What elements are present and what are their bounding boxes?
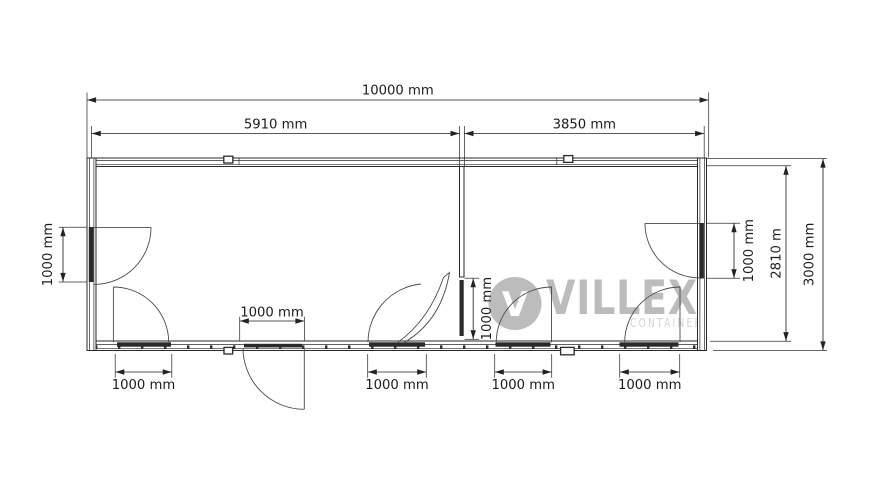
dim-label-door-front-room2-left: 1000 mm [491,378,554,393]
top-wall-outlet-box-1 [224,156,233,163]
front-door-mid-leaf [244,344,302,348]
front-door-room2-right-leaf [620,342,679,346]
floor-plan-page: V VILLEX CONTAINER [0,0,872,490]
left-wall-door-leaf [89,227,94,282]
right-wall-door-swing [645,223,700,278]
dim-label-door-partition: 1000 mm [480,277,495,340]
dim-label-overall-width: 10000 mm [362,84,434,99]
dim-label-door-front-left: 1000 mm [112,378,175,393]
front-door-room1-right-swing [368,284,421,342]
bottom-wall-outlet-box-1 [224,347,233,354]
front-door-room1-right-leaf [369,342,425,346]
front-door-mid-swing [243,348,304,409]
front-door-room1-right-open-leaf [398,273,450,343]
dim-label-depth-outer: 3000 mm [803,223,818,286]
dim-label-section-right: 3850 mm [553,118,616,133]
dim-label-depth-inner: 2810 m [770,228,785,279]
dim-label-door-front-mid: 1000 mm [240,305,303,320]
dim-label-door-front-room1-right: 1000 mm [365,378,428,393]
extension-lines [59,93,827,378]
partition-door-leaf [460,280,464,336]
left-wall-door-swing [93,227,151,284]
dim-label-door-left-wall: 1000 mm [41,223,56,286]
logo-subtitle-text: CONTAINER [630,316,703,330]
top-wall-outlet-box-2 [564,156,573,163]
logo-v-icon: V [502,285,529,325]
top-wall [87,158,707,167]
dim-label-section-left: 5910 mm [244,118,307,133]
dim-label-door-right-wall: 1000 mm [742,219,757,282]
container-floor-plan: V VILLEX CONTAINER [0,0,872,490]
front-door-left-swing [113,287,168,342]
dim-label-door-front-room2-right: 1000 mm [618,378,681,393]
partition-wall [460,167,465,278]
front-door-left-leaf [117,342,171,346]
right-wall-door-leaf [699,223,704,279]
watermark-logo: V VILLEX CONTAINER [489,271,704,330]
front-door-room2-left-leaf [496,342,551,346]
bottom-wall-outlet-box-2 [561,347,575,354]
